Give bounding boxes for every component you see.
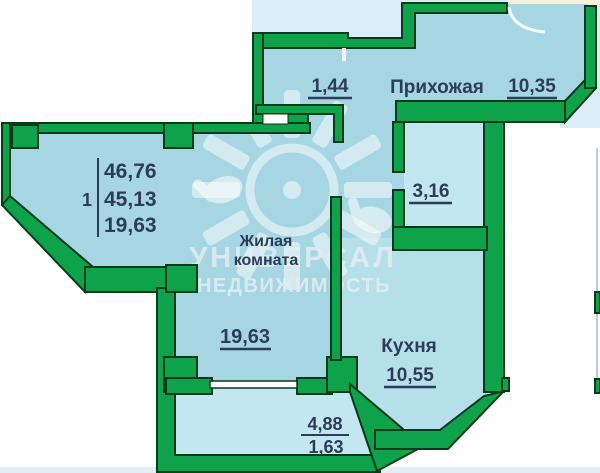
label-hallway-area: 10,35 [508, 76, 556, 97]
wall-stub-right-2 [595, 379, 600, 393]
label-living-name-2: комната [234, 252, 299, 269]
wall-hallway-bottom [396, 101, 565, 122]
label-total-area: 46,76 [104, 160, 157, 183]
label-storage-area: 1,44 [312, 76, 349, 97]
label-bathroom-area: 3,16 [413, 181, 450, 202]
room-hallway [258, 40, 590, 110]
floor-plan: УНИВЕРСАЛ НЕДВИЖИМОСТЬ [0, 0, 600, 473]
label-living-area-summary: 19,63 [104, 214, 157, 237]
storage-partition-mark [342, 48, 346, 61]
label-balcony-area-reduced: 1,63 [308, 437, 343, 457]
label-living-name-1: Жилая [239, 233, 293, 250]
room-hallway-top [402, 12, 507, 46]
pillar-top-mid [164, 123, 193, 148]
label-kitchen-area: 10,55 [386, 365, 434, 386]
label-apartment-area: 45,13 [104, 188, 157, 211]
label-hallway-name: Прихожая [390, 77, 484, 98]
pillar-top-left [12, 125, 38, 148]
watermark-line2: НЕДВИЖИМОСТЬ [197, 275, 391, 297]
adjacent-wall-line [596, 148, 598, 390]
wall-left [2, 123, 10, 205]
wall-living-kitchen-divider [331, 197, 341, 360]
wall-kitchen-nub [502, 378, 509, 391]
label-balcony-area-full: 4,88 [307, 414, 342, 434]
floor-plan-svg: УНИВЕРСАЛ НЕДВИЖИМОСТЬ [0, 0, 600, 473]
pillar-corner [166, 265, 197, 292]
room-bathroom [404, 120, 486, 230]
door-opening-living [263, 114, 288, 124]
wall-bathroom-bottom [393, 227, 487, 250]
wall-bathroom-left-upper [393, 122, 404, 172]
wall-window-left [166, 378, 212, 394]
label-kitchen-name: Кухня [381, 336, 437, 357]
balcony-window [210, 381, 297, 388]
wall-stub-right-1 [595, 292, 600, 313]
wall-right [585, 6, 596, 88]
room-balcony [175, 385, 375, 458]
label-unit-number: 1 [82, 190, 92, 210]
label-living-area: 19,63 [220, 326, 270, 348]
